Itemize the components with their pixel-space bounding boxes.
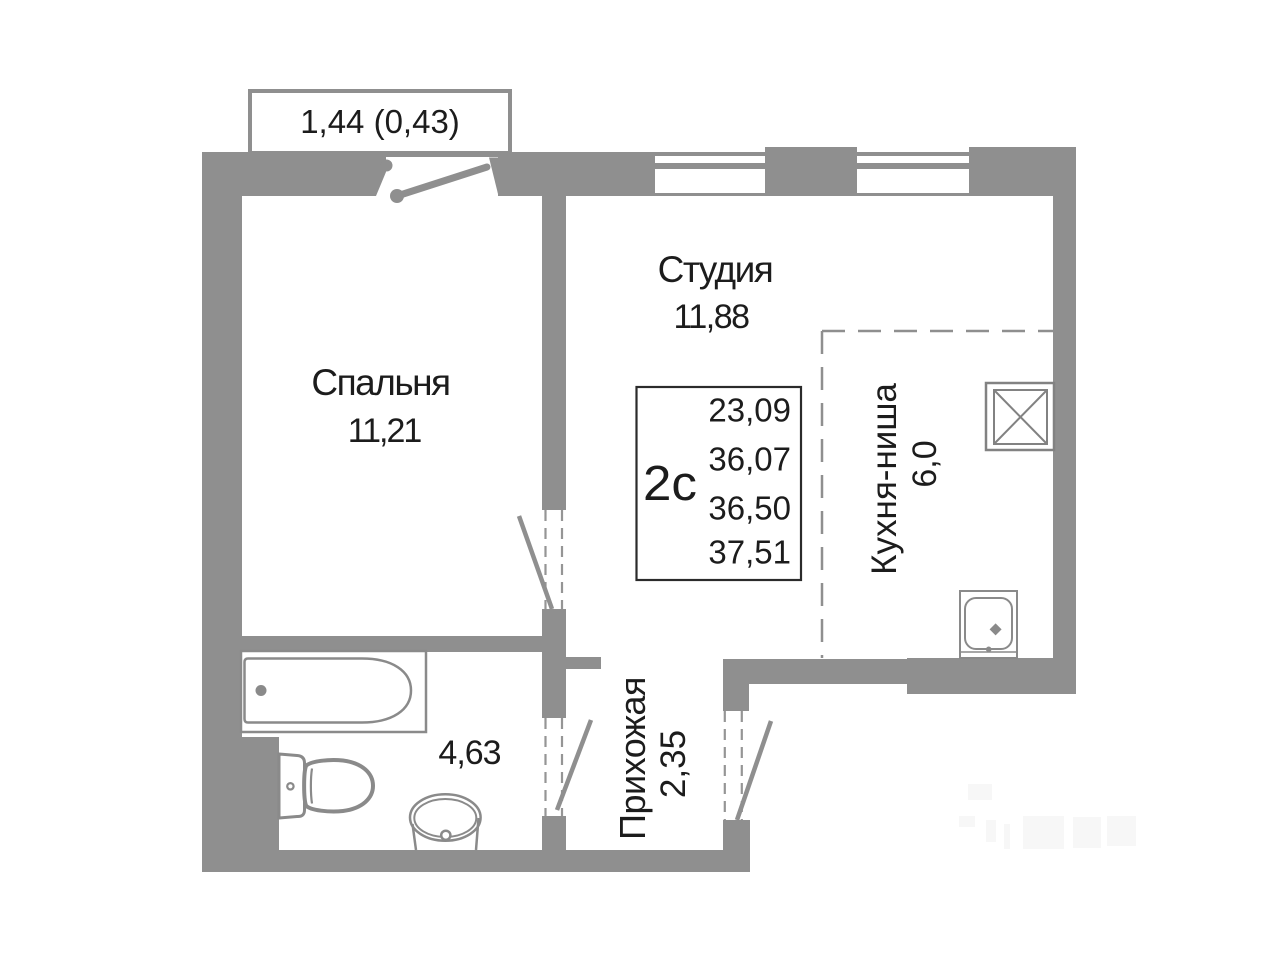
svg-text:Прихожая: Прихожая	[612, 677, 653, 840]
svg-text:2,35: 2,35	[654, 730, 693, 798]
svg-text:23,09: 23,09	[708, 392, 791, 429]
svg-text:37,51: 37,51	[708, 534, 791, 571]
svg-text:11,88: 11,88	[673, 298, 749, 336]
svg-text:Студия: Студия	[658, 249, 773, 290]
svg-text:4,63: 4,63	[438, 734, 500, 772]
svg-text:36,07: 36,07	[708, 441, 791, 478]
svg-text:36,50: 36,50	[708, 490, 791, 527]
svg-text:Спальня: Спальня	[311, 362, 449, 403]
svg-text:6,0: 6,0	[906, 440, 944, 487]
svg-text:2с: 2с	[643, 457, 697, 511]
svg-text:11,21: 11,21	[348, 412, 422, 450]
svg-text:Кухня-ниша: Кухня-ниша	[865, 383, 904, 575]
svg-text:1,44 (0,43): 1,44 (0,43)	[300, 103, 460, 140]
